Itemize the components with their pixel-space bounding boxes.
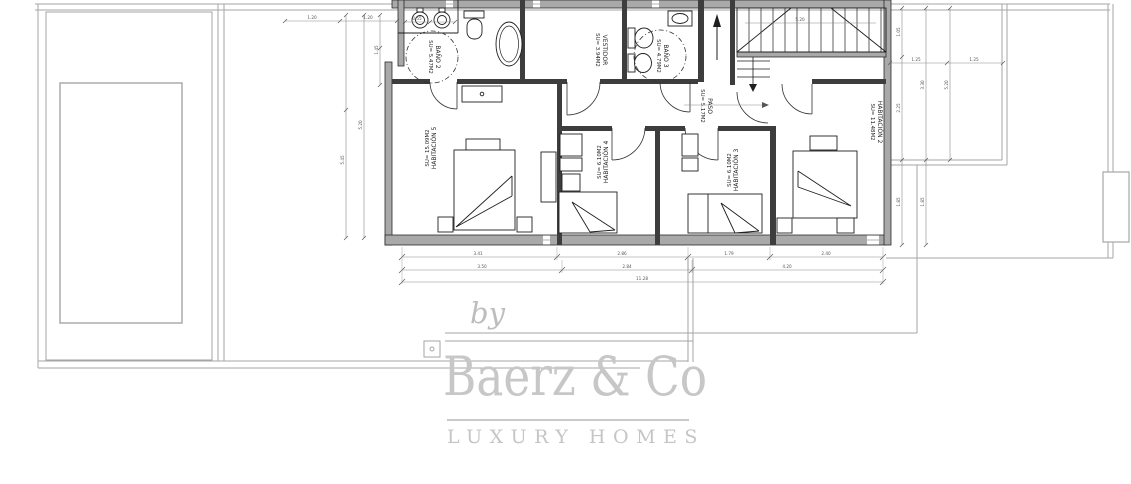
room-label-vestidor-name: VESTIDOR: [601, 35, 608, 66]
hab3-bed: [688, 194, 762, 233]
dim-label: 3.30: [920, 80, 925, 90]
partition: [457, 79, 567, 84]
stair-down-arrowhead: [749, 84, 757, 92]
room-label-hab4: HABITACIÓN 4 SU= 6.10M2: [597, 141, 610, 184]
partition: [812, 79, 886, 84]
dim-label: 5.45: [340, 155, 345, 165]
dim-label: 1.85: [896, 197, 901, 207]
room-label-hab2-area: SU= 11.48M2: [869, 103, 875, 140]
hab2-bed: [793, 151, 857, 218]
room-label-paso-area: SU= 5.17M2: [699, 89, 705, 123]
bath2-door-arc: [430, 82, 457, 109]
dim-label: 5.20: [795, 17, 805, 22]
room-label-hab2: HABITACIÓN 2 SU= 11.48M2: [869, 101, 883, 144]
dim-label: 5.20: [358, 120, 363, 130]
hab4-closet: [560, 158, 582, 171]
partition: [557, 126, 612, 131]
dim-label: 1.25: [969, 57, 979, 62]
wall-stair-bottom: [737, 52, 886, 57]
bathtub-inner: [500, 26, 519, 62]
paso-dim-arrowhead: [762, 102, 769, 108]
site-outlines: [35, 4, 1129, 368]
dim-label: 4.20: [782, 264, 792, 269]
up-arrow-head: [713, 14, 721, 27]
dim-label: 2.25: [896, 103, 901, 113]
bidet-bowl: [635, 54, 652, 73]
watermark-tagline: LUXURY HOMES: [447, 426, 705, 448]
room-label-hab3: HABITACIÓN 3 SU= 6.10M2: [727, 149, 740, 192]
hab3-closet: [682, 158, 698, 171]
hab5-wardrobe: [541, 152, 556, 202]
stair-treads: [749, 8, 881, 52]
partition: [718, 126, 775, 131]
sink-basin-inner: [438, 16, 447, 25]
room-label-hab3-area: SU= 6.10M2: [727, 153, 733, 187]
room-label-vestidor: VESTIDOR SU= 3.94M2: [594, 33, 608, 67]
room-label-hab3-name: HABITACIÓN 3: [733, 149, 740, 192]
wall-left-main: [385, 62, 392, 245]
hab5-bed: [454, 150, 515, 230]
room-label-vestidor-area: SU= 3.94M2: [594, 33, 600, 67]
dim-label: 1.25: [911, 57, 921, 62]
bath3-door-arc: [660, 82, 690, 112]
hab5-dresser-knob: [480, 92, 484, 96]
hab2-nightstand: [837, 218, 854, 233]
hab2-nightstand: [777, 218, 792, 233]
toilet-tank: [628, 28, 635, 48]
stair-lower-treads: [737, 61, 770, 77]
partition: [622, 0, 627, 82]
hab5-headboard: [466, 139, 500, 150]
hab3-closet: [682, 134, 698, 156]
room-label-hab5-area: SU= 15.09M2: [425, 129, 431, 166]
room-label-paso: PASO SU= 5.17M2: [699, 89, 713, 123]
dim-label: 2.86: [617, 251, 627, 256]
watermark-by: by: [470, 299, 505, 328]
toilet-bowl: [635, 28, 653, 48]
hab2-pillow: [810, 136, 837, 150]
dim-label: 1.20: [363, 15, 373, 20]
floorplan-page: BAÑO 2 SU= 5.47M2 VESTIDOR SU= 3.94M2 BA…: [0, 0, 1131, 484]
partition: [770, 126, 776, 245]
room-label-hab4-area: SU= 6.10M2: [597, 145, 603, 179]
corridor-door-arc: [737, 92, 768, 123]
dim-label: 11.28: [636, 276, 648, 281]
dim-label: 1.85: [920, 197, 925, 207]
wall-bottom: [385, 235, 886, 245]
dim-label: 1.20: [307, 15, 317, 20]
right-edge-box: [1103, 172, 1129, 242]
room-label-bano3: BAÑO 3 SU= 4.79M2: [655, 39, 669, 73]
partition: [645, 126, 685, 131]
dim-label: 5.20: [944, 80, 949, 90]
right-dim-lines: [890, 8, 1003, 245]
stair-outline: [737, 8, 886, 52]
hab4-closet: [560, 134, 582, 156]
stair-break-diagonals: [737, 8, 886, 52]
partition: [698, 0, 704, 82]
room-label-bano2-name: BAÑO 2: [434, 45, 441, 68]
wall-right: [884, 0, 891, 245]
sink-faucet: [439, 8, 445, 12]
room-label-bano3-area: SU= 4.79M2: [655, 39, 661, 73]
room-label-hab2-name: HABITACIÓN 2: [876, 101, 883, 144]
watermark-brand: Baerz & Co: [443, 347, 688, 406]
terrace-divider: [218, 4, 224, 361]
dim-label: 2.84: [622, 264, 632, 269]
top-dim-lines: [285, 21, 455, 22]
left-terrace-inner: [46, 12, 212, 360]
partition: [655, 131, 660, 245]
partition: [730, 0, 735, 85]
room-label-bano2: BAÑO 2 SU= 5.47M2: [427, 40, 441, 74]
toilet-tank: [464, 11, 484, 18]
dim-label: 1.45: [374, 45, 379, 55]
right-dim-ticks: [888, 6, 1005, 247]
hab5-nightstand: [438, 217, 453, 232]
toilet-bowl: [467, 19, 482, 39]
hab2-door-arc: [782, 84, 812, 114]
hab5-nightstand: [517, 217, 532, 232]
wall-top: [392, 0, 886, 8]
dim-label: 3.41: [473, 251, 483, 256]
sink-faucet: [417, 8, 423, 12]
dim-label: 2.40: [821, 251, 831, 256]
hab4-pillow: [562, 174, 580, 191]
room-label-hab5: HABITACIÓN 5 SU= 15.09M2: [425, 127, 438, 170]
sink-basin: [672, 14, 688, 24]
dim-label: 1.79: [724, 251, 734, 256]
room-label-hab5-name: HABITACIÓN 5: [431, 127, 438, 170]
entry-up-arrow: [713, 14, 721, 60]
room-label-bano2-area: SU= 5.47M2: [427, 40, 433, 74]
pool: [60, 83, 182, 323]
hab4-door-arc: [612, 128, 645, 160]
room-label-paso-name: PASO: [706, 98, 713, 114]
vestidor-door-arc: [567, 82, 600, 115]
room-label-hab4-name: HABITACIÓN 4: [603, 141, 610, 184]
dim-label: 3.50: [477, 264, 487, 269]
right-boundary: [886, 4, 1113, 258]
site-marker-box: [424, 341, 440, 357]
room-label-bano3-name: BAÑO 3: [662, 44, 669, 67]
floor-plan-svg: BAÑO 2 SU= 5.47M2 VESTIDOR SU= 3.94M2 BA…: [0, 0, 1131, 484]
right-terrace: [891, 4, 1007, 333]
dim-label: 0.55: [412, 16, 422, 21]
dim-label: 1.05: [896, 27, 901, 37]
watermark-rule: [447, 419, 689, 421]
